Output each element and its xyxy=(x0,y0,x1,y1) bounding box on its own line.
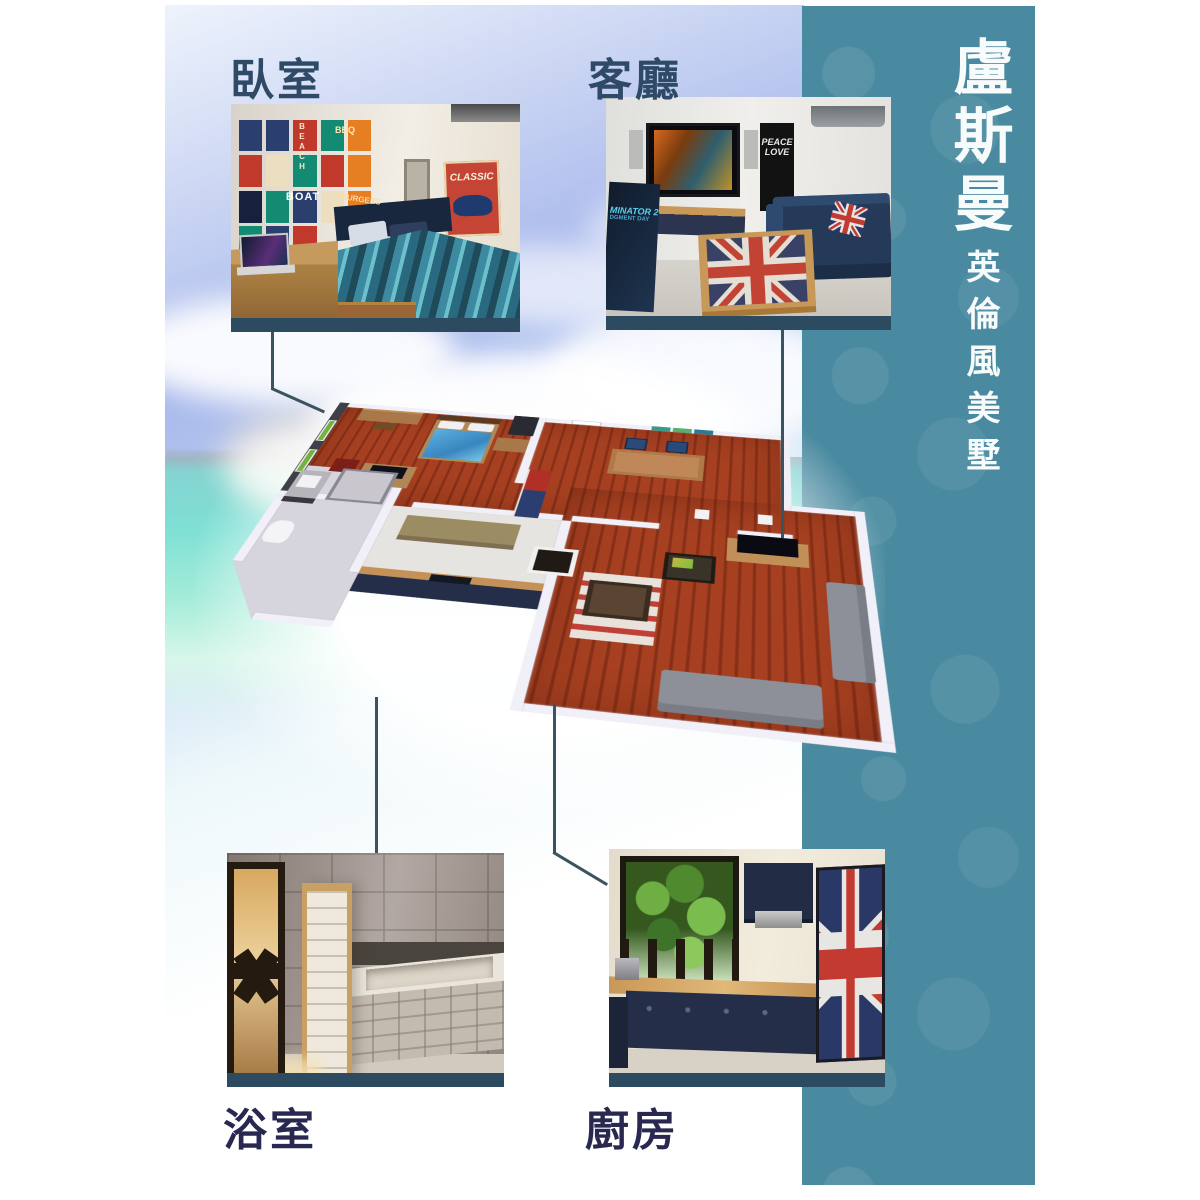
speaker xyxy=(758,514,773,525)
poster-bbq: BBQ xyxy=(335,125,355,135)
bed-duvet xyxy=(422,429,493,462)
union-jack-tabletop xyxy=(706,235,807,306)
photo-bottom-bar xyxy=(609,1073,885,1087)
navy-cabinets xyxy=(626,991,819,1055)
bedroom-photo: BEACH BBQ BOAT BURGERS CLASSIC xyxy=(231,104,520,332)
nightstand xyxy=(492,437,529,452)
bathroom-photo xyxy=(227,853,504,1087)
dining-chair xyxy=(665,441,688,454)
air-conditioner xyxy=(811,106,885,127)
toaster xyxy=(615,958,640,979)
union-jack-fridge xyxy=(816,864,885,1063)
label-living-room: 客廳 xyxy=(588,44,682,108)
speaker xyxy=(744,130,758,170)
coffee-table xyxy=(582,580,652,622)
poster-beach: BEACH xyxy=(297,122,306,172)
coffee-table xyxy=(698,229,816,312)
folding-door xyxy=(227,862,285,1080)
connector-bedroom xyxy=(271,331,274,389)
tv-screen xyxy=(654,130,731,190)
label-kitchen: 廚房 xyxy=(585,1094,679,1158)
connector-kitchen xyxy=(553,703,556,854)
photo-bottom-bar xyxy=(227,1073,504,1087)
poster-classic-text: CLASSIC xyxy=(446,171,497,184)
photo-bottom-bar xyxy=(606,316,891,330)
square-table xyxy=(526,546,579,577)
laptop-screen xyxy=(239,233,290,270)
label-bedroom: 臥室 xyxy=(230,44,324,108)
photo-bottom-bar xyxy=(231,318,520,332)
poster-boat: BOAT xyxy=(286,191,320,203)
window-blind xyxy=(451,104,520,122)
living-room-photo: PEACE LOVE MINATOR 2 DGMENT DAY xyxy=(606,97,891,330)
wood-framed-partition xyxy=(302,883,352,1080)
estate-subtitle: 英倫風美墅 xyxy=(962,249,996,484)
kitchen-photo xyxy=(609,849,885,1087)
classic-car-poster: CLASSIC xyxy=(444,160,501,237)
floorplan-scene xyxy=(133,402,912,773)
range-hood xyxy=(755,911,802,928)
car-illustration xyxy=(453,194,492,217)
pinball-machine: MINATOR 2 DGMENT DAY xyxy=(606,182,661,313)
connector-bathroom xyxy=(375,697,378,855)
label-bathroom: 浴室 xyxy=(223,1094,317,1158)
brochure-page: 盧斯曼 英倫風美墅 xyxy=(0,0,1200,1200)
connector-living xyxy=(781,329,784,538)
poster-text: PEACE xyxy=(760,137,794,147)
speaker xyxy=(694,509,709,520)
game-screen xyxy=(672,557,694,568)
poster-text: LOVE xyxy=(760,147,794,157)
estate-title: 盧斯曼 xyxy=(948,36,1008,240)
side-cabinet xyxy=(609,997,628,1068)
speaker xyxy=(629,130,643,170)
door-middle-bar xyxy=(234,963,278,979)
dining-chair xyxy=(624,438,648,451)
